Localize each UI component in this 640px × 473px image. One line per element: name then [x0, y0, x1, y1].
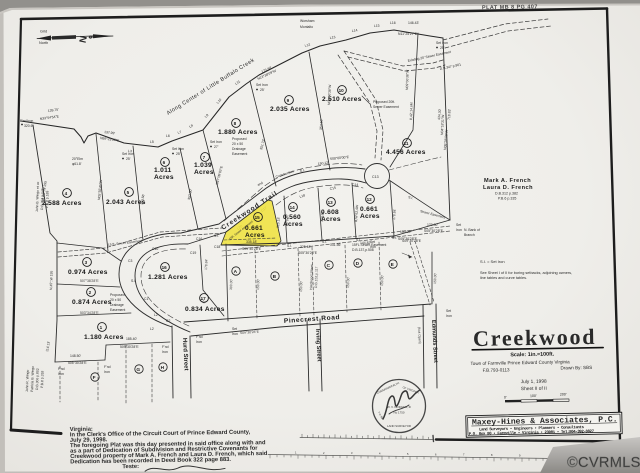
svg-text:F.B.793-0113: F.B.793-0113	[483, 367, 511, 372]
svg-text:150.00': 150.00'	[256, 279, 260, 291]
svg-text:25': 25'	[126, 157, 131, 161]
svg-text:2.043 Acres: 2.043 Acres	[106, 199, 146, 206]
svg-text:S09°30'28"E: S09°30'28"E	[398, 237, 418, 241]
svg-text:N,45°,W 195: N,45°,W 195	[49, 271, 54, 291]
svg-text:Scale: 1in.=100ft.: Scale: 1in.=100ft.	[510, 352, 554, 359]
svg-text:Easement: Easement	[110, 308, 125, 312]
svg-text:F: F	[93, 375, 96, 381]
svg-text:S09°30'28"E: S09°30'28"E	[242, 247, 262, 251]
svg-text:John R. Wingo: John R. Wingo	[25, 370, 30, 392]
svg-text:line tables and curve tables.: line tables and curve tables.	[480, 276, 527, 280]
svg-text:Set Iron: Set Iron	[256, 83, 268, 87]
svg-text:503°34'28"E: 503°34'28"E	[80, 311, 99, 315]
svg-text:F'nd: F'nd	[162, 345, 169, 349]
svg-text:185.40': 185.40'	[126, 337, 137, 341]
svg-text:Set: Set	[370, 240, 375, 244]
svg-text:15: 15	[255, 215, 261, 220]
svg-text:4.456 Acres: 4.456 Acres	[386, 149, 426, 156]
svg-text:9: 9	[287, 98, 290, 103]
svg-text:325.18': 325.18'	[300, 245, 311, 249]
svg-text:Proposed: Proposed	[110, 293, 125, 297]
svg-text:16: 16	[162, 265, 168, 270]
svg-text:D: D	[356, 261, 360, 267]
svg-text:Sewer Easement: Sewer Easement	[373, 105, 399, 109]
svg-text:H: H	[161, 365, 165, 371]
svg-text:0.834 Acres: 0.834 Acres	[185, 306, 225, 313]
svg-text:2.510 Acres: 2.510 Acres	[322, 96, 362, 103]
svg-text:Set: Set	[456, 223, 461, 227]
svg-text:150.00': 150.00'	[400, 230, 411, 234]
svg-text:0.661: 0.661	[360, 206, 378, 213]
svg-text:146.43': 146.43'	[408, 21, 419, 25]
svg-text:20°Elm: 20°Elm	[72, 157, 83, 161]
svg-text:A: A	[234, 269, 238, 275]
svg-text:25': 25'	[176, 152, 181, 156]
svg-text:Easement: Easement	[232, 152, 247, 156]
svg-text:354.56': 354.56'	[319, 118, 324, 130]
svg-text:Iron: Iron	[446, 314, 452, 318]
svg-text:25': 25'	[260, 88, 265, 92]
svg-text:S.I.: S.I.	[392, 236, 397, 240]
svg-text:N09°06'38"W: N09°06'38"W	[405, 69, 410, 90]
svg-text:Sheet II of II: Sheet II of II	[521, 386, 547, 392]
svg-text:2: 2	[89, 290, 92, 295]
svg-text:Acres: Acres	[360, 213, 380, 220]
svg-text:Acres: Acres	[245, 232, 265, 239]
svg-text:C19: C19	[190, 251, 196, 255]
svg-text:Set Iron: Set Iron	[172, 147, 184, 151]
svg-text:Set Iron: Set Iron	[122, 152, 134, 156]
svg-text:S05°30'28"E: S05°30'28"E	[424, 229, 444, 233]
svg-text:P.B.6 p.335: P.B.6 p.335	[498, 197, 516, 201]
svg-text:Set: Set	[446, 309, 451, 313]
svg-text:507°38'28"E: 507°38'28"E	[80, 279, 99, 283]
svg-text:13: 13	[328, 200, 334, 205]
svg-text:300.00': 300.00'	[229, 279, 233, 291]
svg-text:Mark A. French: Mark A. French	[484, 178, 531, 184]
svg-text:S.I.: S.I.	[287, 244, 292, 248]
svg-text:Set: Set	[232, 327, 237, 331]
svg-text:C13: C13	[372, 175, 379, 179]
svg-text:320.6': 320.6'	[24, 124, 33, 128]
svg-text:100': 100'	[530, 394, 537, 398]
svg-text:C14: C14	[352, 183, 358, 187]
svg-text:L2: L2	[150, 327, 154, 331]
svg-text:150.00': 150.00'	[380, 275, 384, 287]
svg-text:1.039: 1.039	[194, 162, 212, 169]
svg-text:7: 7	[203, 155, 206, 160]
svg-text:Iron: Iron	[58, 372, 64, 376]
svg-text:Iron: Iron	[370, 245, 376, 249]
svg-text:12: 12	[367, 197, 373, 202]
svg-text:North: North	[39, 41, 48, 45]
svg-text:1.011: 1.011	[154, 167, 172, 174]
svg-text:C16: C16	[196, 237, 202, 241]
svg-text:17: 17	[201, 296, 207, 301]
svg-text:170.00': 170.00'	[427, 223, 438, 227]
svg-text:P.B.8 p.318: P.B.8 p.318	[40, 371, 45, 389]
svg-text:8: 8	[234, 121, 237, 126]
svg-text:S.I. = Set Iron: S.I. = Set Iron	[480, 259, 505, 264]
svg-text:Set Iron: Set Iron	[210, 140, 222, 144]
svg-text:C18: C18	[214, 245, 220, 249]
svg-text:1.880 Acres: 1.880 Acres	[218, 129, 258, 136]
svg-text:10: 10	[339, 88, 345, 93]
svg-text:PLAT MB 8 PG 407: PLAT MB 8 PG 407	[482, 4, 538, 11]
svg-text:5: 5	[127, 190, 130, 195]
svg-text:L5: L5	[150, 140, 154, 144]
svg-text:0': 0'	[504, 395, 507, 399]
svg-text:150.00': 150.00'	[433, 273, 437, 285]
svg-text:11: 11	[404, 141, 409, 146]
svg-text:131.56': 131.56'	[330, 243, 341, 247]
svg-text:F'nd: F'nd	[58, 367, 65, 371]
svg-text:1: 1	[100, 325, 103, 330]
svg-text:D.B.152,p.117: D.B.152,p.117	[314, 266, 319, 288]
svg-text:L16: L16	[390, 21, 396, 25]
svg-text:Iron: Iron	[232, 332, 238, 336]
svg-text:150.00': 150.00'	[346, 277, 350, 289]
svg-text:8,42',14.6M: 8,42',14.6M	[409, 102, 414, 120]
svg-text:Grid: Grid	[40, 30, 47, 34]
svg-text:25': 25'	[440, 46, 445, 50]
svg-text:N11°25'27"E: N11°25'27"E	[398, 32, 418, 36]
svg-text:14: 14	[290, 205, 296, 210]
svg-text:Set Iron: Set Iron	[436, 41, 448, 45]
svg-text:2.588 Acres: 2.588 Acres	[42, 200, 82, 207]
svg-text:148.50': 148.50'	[70, 354, 81, 358]
svg-text:F'nd Iron: F'nd Iron	[20, 119, 33, 123]
svg-text:Creekwood: Creekwood	[473, 324, 597, 351]
svg-text:L15: L15	[374, 24, 380, 28]
svg-text:F'nd: F'nd	[104, 365, 111, 369]
svg-text:Iron: Iron	[196, 340, 202, 344]
svg-text:4: 4	[65, 191, 68, 196]
svg-text:150.00': 150.00'	[299, 281, 303, 293]
svg-text:2.035 Acres: 2.035 Acres	[270, 106, 310, 113]
svg-text:1.180 Acres: 1.180 Acres	[84, 334, 124, 341]
svg-text:C2: C2	[166, 319, 170, 323]
svg-text:C3: C3	[128, 259, 132, 263]
svg-text:C10: C10	[152, 247, 158, 251]
svg-text:Iron: Iron	[162, 350, 168, 354]
svg-text:F'nd: F'nd	[196, 335, 203, 339]
svg-text:200': 200'	[560, 392, 567, 396]
svg-text:0.874 Acres: 0.874 Acres	[72, 299, 112, 306]
svg-text:D.B.306 p.802: D.B.306 p.802	[35, 368, 40, 390]
svg-text:D.B.312 p.382: D.B.312 p.382	[495, 192, 518, 196]
svg-text:20 x 50: 20 x 50	[232, 142, 243, 146]
svg-text:509°30'28"E: 509°30'28"E	[120, 345, 139, 349]
svg-text:S.I.: S.I.	[131, 279, 136, 283]
svg-text:0.974 Acres: 0.974 Acres	[68, 269, 108, 276]
svg-text:Drawn By: SBS: Drawn By: SBS	[560, 365, 592, 371]
svg-text:See Sheet I of II for boring s: See Sheet I of II for boring setbacks, a…	[480, 271, 572, 275]
svg-text:B: B	[273, 274, 277, 280]
svg-text:Teste:: Teste:	[122, 464, 139, 470]
svg-text:Laura D. French: Laura D. French	[483, 185, 533, 191]
svg-text:178.84': 178.84'	[204, 258, 209, 270]
svg-text:S05°30'28"E: S05°30'28"E	[298, 251, 318, 255]
svg-text:178.84': 178.84'	[392, 208, 397, 220]
svg-text:L14: L14	[352, 28, 358, 33]
svg-text:L2: L2	[154, 313, 158, 317]
svg-text:Proposed: Proposed	[232, 137, 247, 141]
svg-text:Montalto: Montalto	[300, 25, 313, 29]
svg-text:Iron: Iron	[456, 228, 462, 232]
svg-text:Iron: Iron	[104, 370, 110, 374]
svg-text:174.64': 174.64'	[320, 210, 325, 222]
svg-text:179.97': 179.97'	[285, 213, 290, 225]
svg-text:6: 6	[163, 160, 166, 165]
svg-text:Drainage: Drainage	[110, 303, 124, 307]
svg-text:Branch: Branch	[464, 233, 475, 237]
svg-text:Acres: Acres	[194, 169, 214, 176]
svg-text:Drainage: Drainage	[232, 147, 246, 151]
svg-text:C1: C1	[144, 297, 148, 301]
svg-text:718.83': 718.83'	[447, 108, 452, 120]
svg-text:335.18': 335.18'	[246, 240, 257, 244]
svg-text:27': 27'	[214, 145, 219, 149]
svg-text:G: G	[136, 367, 140, 373]
svg-text:C: C	[327, 263, 331, 269]
svg-text:Acres: Acres	[154, 174, 174, 181]
svg-text:1.281 Acres: 1.281 Acres	[148, 274, 188, 281]
svg-text:S.I.: S.I.	[214, 234, 219, 238]
svg-text:L6: L6	[166, 134, 170, 138]
svg-text:July 1, 1998: July 1, 1998	[521, 379, 547, 385]
svg-text:Worsham: Worsham	[300, 19, 315, 23]
svg-text:φ61.8': φ61.8'	[72, 162, 82, 166]
svg-text:Proposed 20ft.: Proposed 20ft.	[373, 100, 395, 104]
svg-text:N. Bank of: N. Bank of	[464, 228, 480, 232]
svg-text:325.18': 325.18'	[276, 216, 281, 228]
svg-text:3: 3	[85, 260, 88, 265]
svg-text:505°30'28"E: 505°30'28"E	[68, 361, 87, 365]
svg-text:©CVRMLS: ©CVRMLS	[567, 455, 640, 471]
svg-text:LAND SURVEYOR: LAND SURVEYOR	[387, 424, 411, 428]
